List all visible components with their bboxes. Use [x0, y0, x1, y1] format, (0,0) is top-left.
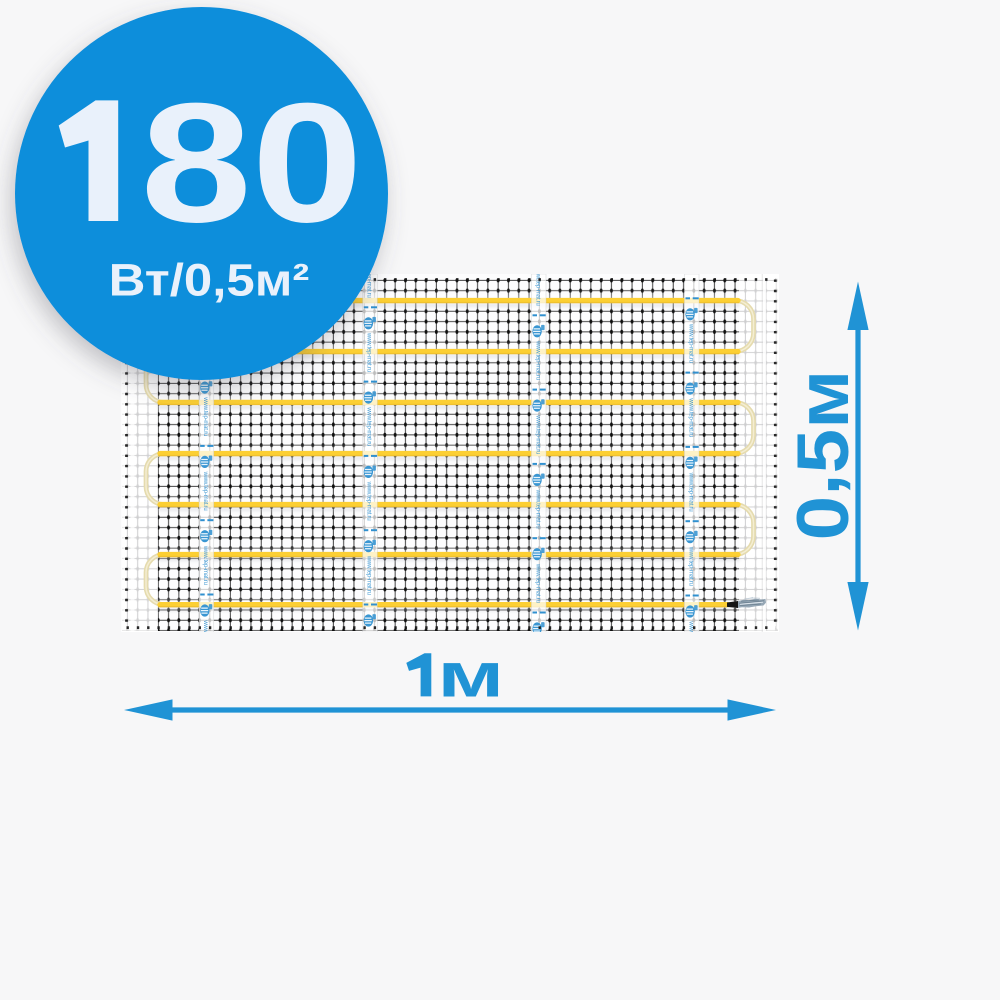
svg-text:www.tep-mat.ru: www.tep-mat.ru [366, 406, 372, 446]
svg-text:www.tep-mat.ru: www.tep-mat.ru [202, 471, 208, 511]
svg-text:www.tep-mat.ru: www.tep-mat.ru [366, 555, 372, 595]
svg-text:www.tep-mat.ru: www.tep-mat.ru [687, 472, 693, 512]
svg-text:www.tep-mat.ru: www.tep-mat.ru [534, 489, 540, 529]
svg-text:0,5м: 0,5м [774, 370, 864, 541]
svg-text:м: м [437, 639, 504, 710]
svg-text:www.tep-mat.ru: www.tep-mat.ru [534, 340, 540, 380]
svg-text:80: 80 [141, 68, 363, 258]
svg-text:www.tep-mat.ru: www.tep-mat.ru [202, 545, 208, 585]
svg-text:www.tep-mat.ru: www.tep-mat.ru [687, 323, 693, 363]
svg-text:www.tep-mat.ru: www.tep-mat.ru [366, 332, 372, 372]
svg-text:www.tep-mat.ru: www.tep-mat.ru [366, 481, 372, 521]
svg-text:Вт/0,5м²: Вт/0,5м² [109, 255, 310, 306]
svg-text:www.tep-mat.ru: www.tep-mat.ru [687, 397, 693, 437]
svg-text:www.tep-mat.ru: www.tep-mat.ru [202, 396, 208, 436]
svg-text:www.tep-mat.ru: www.tep-mat.ru [687, 546, 693, 586]
svg-text:www.tep-mat.ru: www.tep-mat.ru [534, 414, 540, 454]
svg-text:www.tep-mat.ru: www.tep-mat.ru [534, 563, 540, 603]
